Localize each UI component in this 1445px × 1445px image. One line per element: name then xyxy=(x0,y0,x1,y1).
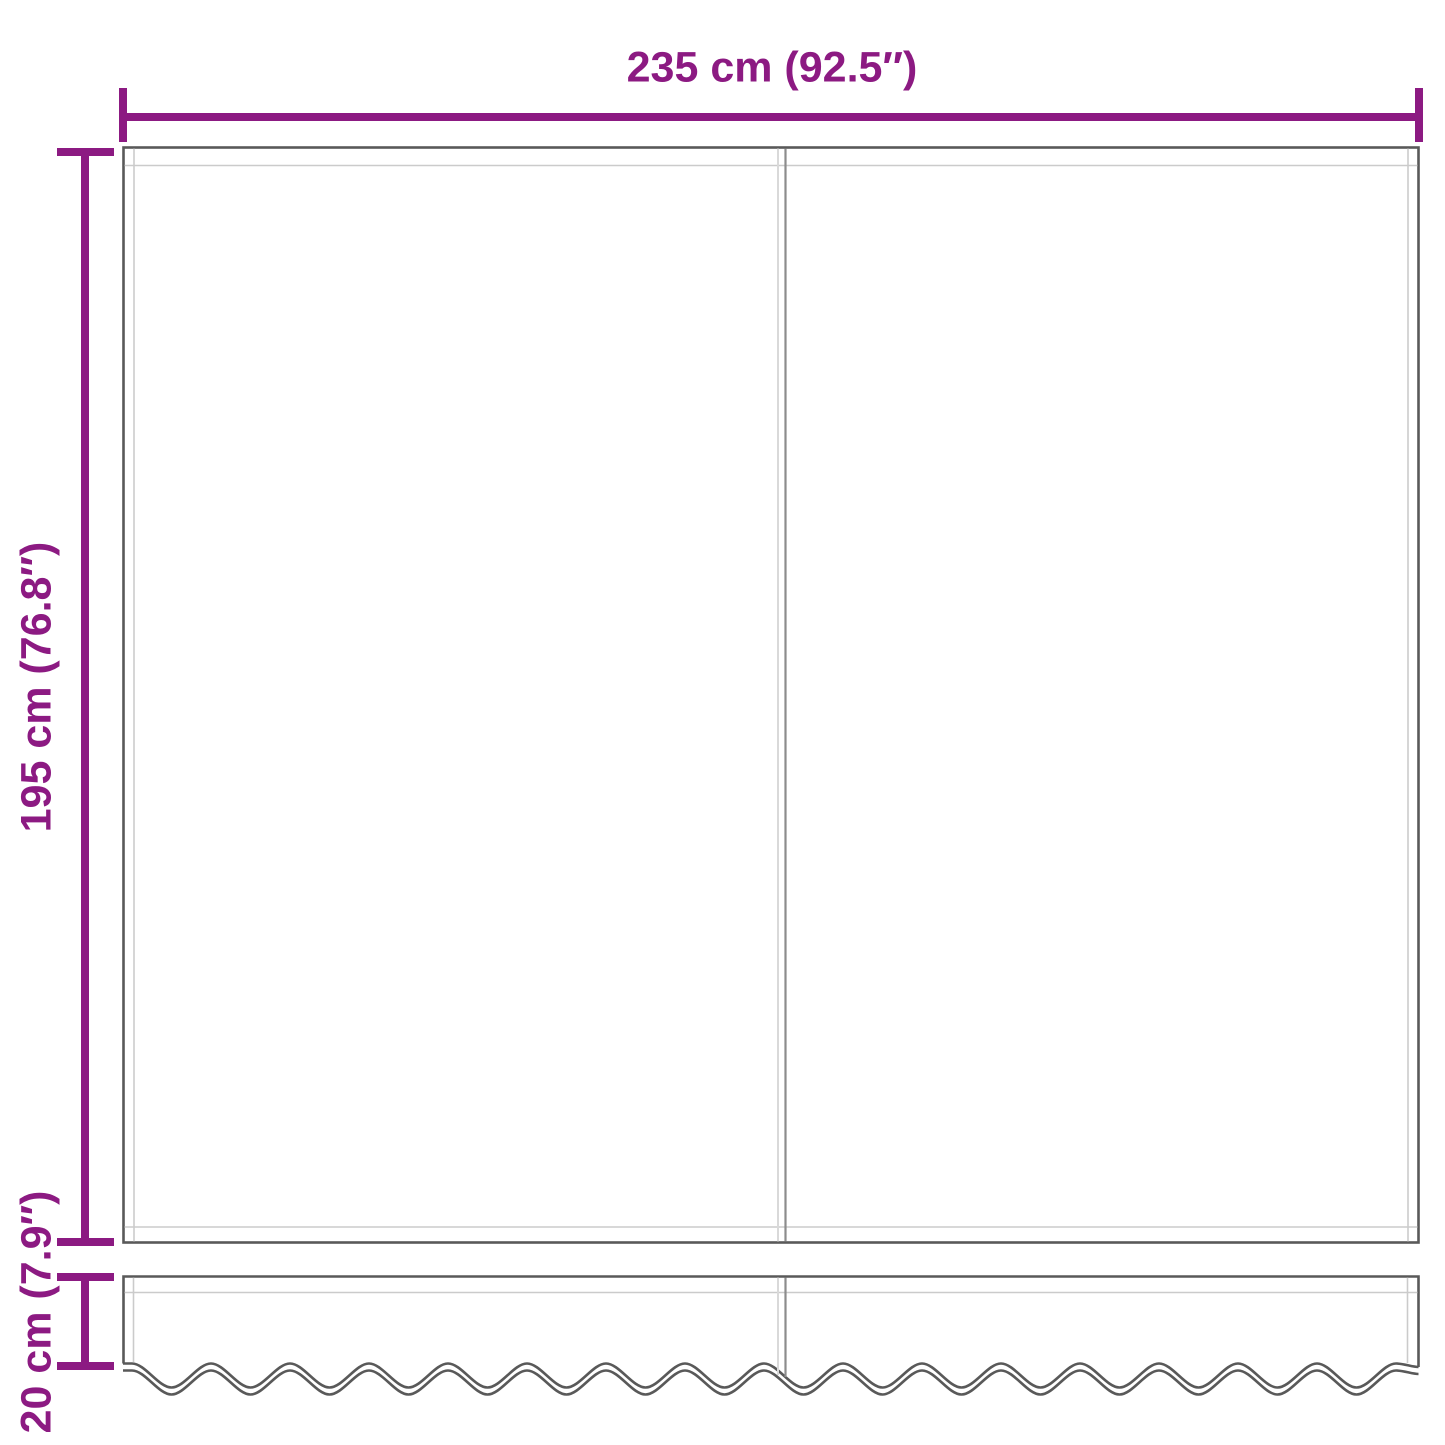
dimension-diagram: 235 cm (92.5″) 195 cm (76.8″) 20 cm (7.9… xyxy=(0,0,1445,1445)
valance-outline xyxy=(124,1277,1419,1368)
awning-fabric-drawing xyxy=(0,0,1445,1445)
fabric-panel-outline xyxy=(124,148,1419,1243)
valance-scallop-edge-outer xyxy=(123,1364,1419,1388)
valance-dimension-label: 20 cm (7.9″) xyxy=(13,1191,62,1434)
height-dimension-label: 195 cm (76.8″) xyxy=(13,542,62,833)
width-dimension-label: 235 cm (92.5″) xyxy=(627,44,918,93)
